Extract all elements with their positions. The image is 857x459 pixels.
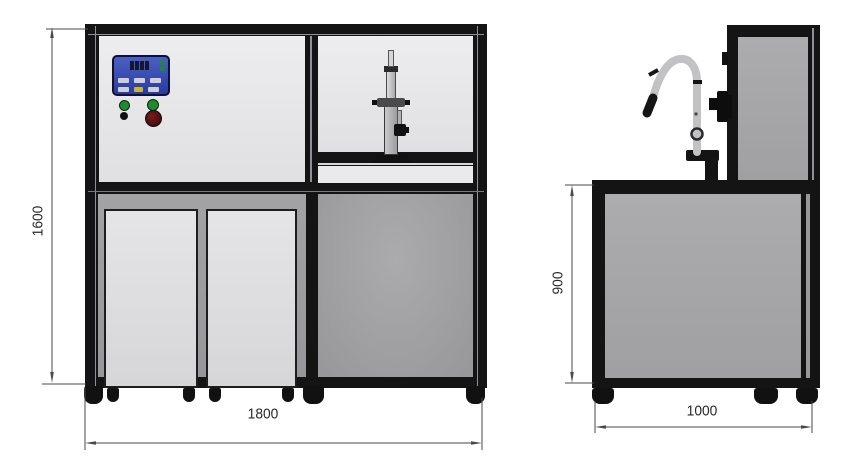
dimension-lines: [0, 0, 857, 459]
dimension-label-front-width: 1800: [248, 406, 279, 423]
dimension-label-side-depth: 1000: [687, 403, 718, 420]
dimension-label-side-height: 900: [550, 271, 567, 294]
dimension-label-front-height: 1600: [30, 206, 47, 237]
technical-drawing-canvas: 1600 1800 900 1000: [0, 0, 857, 459]
